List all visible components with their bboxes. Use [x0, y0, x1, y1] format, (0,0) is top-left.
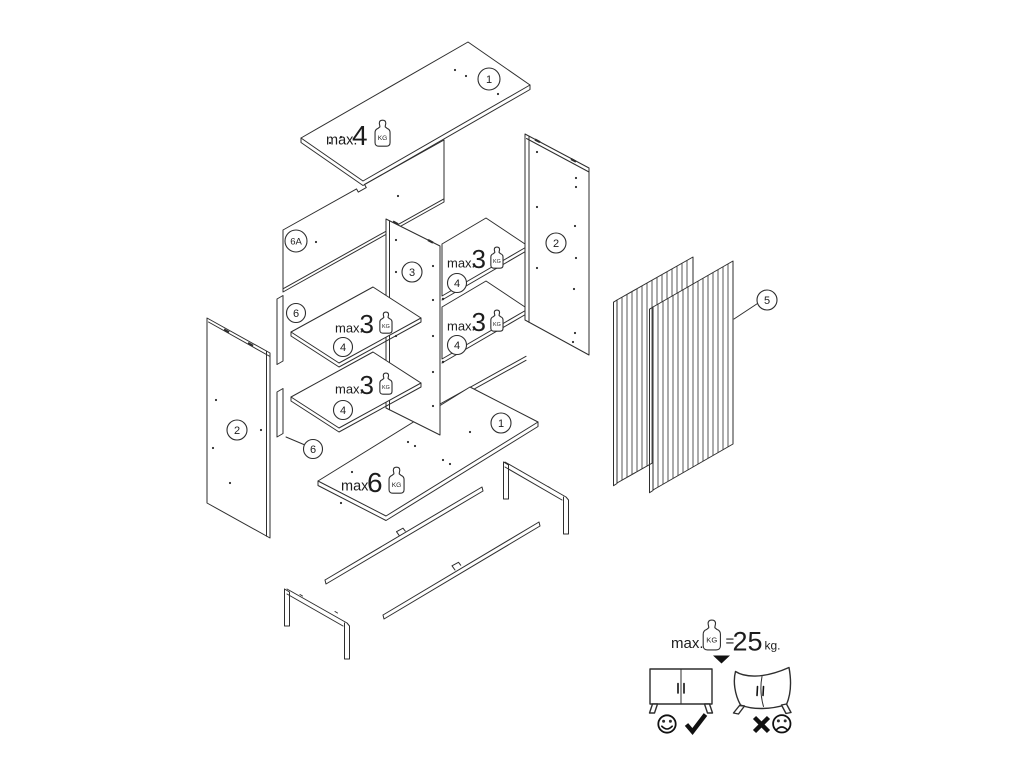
- assembly-instruction-page: max. 4 KG max. 3 KG max. 3 KG max. 3 KG …: [0, 0, 1024, 768]
- callout-shelf-left-upper: 4: [334, 338, 353, 357]
- svg-text:4: 4: [454, 340, 460, 352]
- kg-unit: KG: [493, 322, 501, 328]
- callout-shelf-right-lower: 4: [448, 336, 467, 355]
- svg-text:1: 1: [486, 74, 492, 86]
- callout-shelf-left-lower: 4: [334, 401, 353, 420]
- callout-back-rail-lower: 6: [304, 440, 323, 459]
- kg-unit: KG: [392, 482, 402, 489]
- callout-back-panel: 6A: [285, 230, 307, 252]
- cabinet-broken-illustration: [734, 668, 792, 715]
- cabinet-legs: [650, 704, 713, 713]
- kg-unit: KG: [382, 324, 390, 330]
- exploded-view-diagram: max. 4 KG max. 3 KG max. 3 KG max. 3 KG …: [0, 0, 1024, 768]
- svg-text:4: 4: [340, 405, 346, 417]
- back-rail-lower: [277, 389, 283, 438]
- callout-back-rail-upper: 6: [287, 304, 306, 323]
- kg-unit: KG: [493, 259, 501, 265]
- max-value: 3: [360, 370, 374, 400]
- legend-max-value: 25: [733, 627, 763, 657]
- back-rail-upper: [277, 296, 283, 365]
- callout-top-panel: 1: [478, 68, 500, 90]
- leader-line-rail-lower: [286, 437, 304, 445]
- max-value: 6: [367, 467, 383, 498]
- checkmark-icon: [687, 715, 706, 732]
- max-value: 3: [472, 244, 486, 274]
- svg-text:4: 4: [454, 278, 460, 290]
- happy-face-icon: [658, 715, 675, 732]
- max-value: 3: [472, 307, 486, 337]
- callout-bottom-panel: 1: [491, 413, 511, 433]
- cabinet-ok-illustration: [650, 669, 713, 713]
- max-value: 3: [360, 309, 374, 339]
- leader-line-doors: [734, 304, 758, 320]
- leg-frame-left: [285, 589, 350, 659]
- legend-max-text: max.: [671, 635, 704, 652]
- svg-text:6: 6: [310, 444, 316, 456]
- max-weight-legend: max. KG = 25 kg.: [650, 620, 792, 733]
- kg-unit: KG: [706, 636, 717, 645]
- callout-side-panel-left: 2: [227, 420, 247, 440]
- svg-text:5: 5: [764, 295, 770, 307]
- max-value: 4: [352, 120, 368, 151]
- sad-face-icon: [773, 715, 790, 732]
- svg-text:6: 6: [293, 308, 299, 320]
- arrow-down-icon: [713, 656, 730, 664]
- leg-frame-right: [504, 462, 569, 534]
- svg-text:2: 2: [553, 238, 559, 250]
- callout-doors: 5: [757, 290, 777, 310]
- kg-unit: KG: [382, 385, 390, 391]
- callout-side-panel-right: 2: [546, 233, 566, 253]
- callout-center-divider: 3: [402, 262, 422, 282]
- callout-shelf-right-upper: 4: [448, 274, 467, 293]
- svg-text:2: 2: [234, 425, 240, 437]
- svg-text:3: 3: [409, 267, 415, 279]
- svg-text:1: 1: [498, 418, 504, 430]
- legend-unit: kg.: [765, 639, 781, 653]
- cross-icon: [755, 718, 769, 732]
- kg-unit: KG: [378, 135, 388, 142]
- svg-text:4: 4: [340, 342, 346, 354]
- svg-text:6A: 6A: [290, 237, 302, 248]
